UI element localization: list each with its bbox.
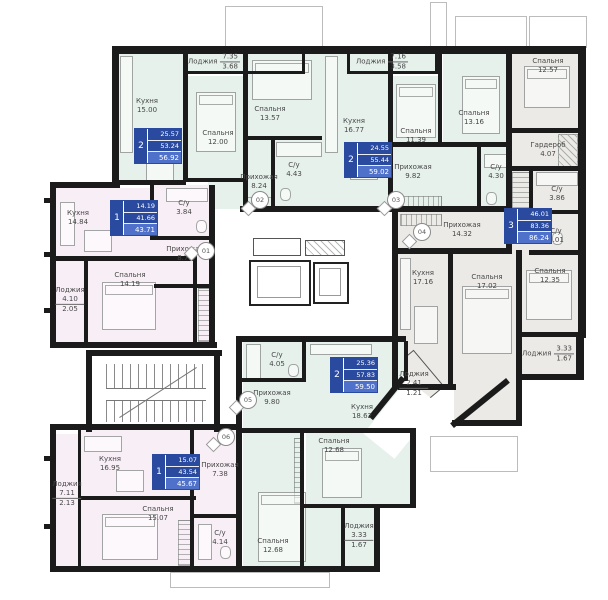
- room-name: Гардероб: [530, 141, 565, 150]
- room-name: Спальня: [202, 129, 233, 138]
- room-area: 14.32: [443, 230, 481, 239]
- stat-card-a01: 1 14.19 41.66 43.71: [110, 200, 158, 236]
- label-bedroom2-a04: Спальня17.02: [471, 273, 502, 291]
- wall: [243, 136, 322, 140]
- wall: [512, 128, 578, 133]
- wall: [302, 336, 306, 382]
- loggia-area-bottom: 1.67: [554, 355, 574, 364]
- wall: [448, 254, 453, 386]
- label-bath-a01: С/у3.84: [176, 199, 192, 217]
- wall-thin: [435, 46, 438, 74]
- label-kitchen-a05: Кухня18.62: [351, 403, 373, 421]
- label-bath-a05: С/у4.05: [269, 351, 285, 369]
- label-bedroom2-a03: Спальня13.16: [458, 109, 489, 127]
- furniture-table: [84, 230, 112, 252]
- furniture-counter: [120, 56, 133, 153]
- wall: [86, 350, 92, 432]
- room-name: Прихожая: [253, 389, 291, 398]
- room-area: 3.86: [549, 194, 565, 203]
- room-name: Спальня: [114, 271, 145, 280]
- room-name: Кухня: [99, 455, 121, 464]
- label-loggia1-a04: Лоджия 3.331.67: [522, 344, 574, 363]
- label-bedroom-a01: Спальня14.19: [114, 271, 145, 289]
- furniture-toilet: [288, 364, 299, 377]
- entrance-marker-02: 02: [251, 191, 269, 209]
- apartment-area: 55.44: [358, 155, 391, 167]
- wall: [578, 46, 586, 338]
- loggia-fraction: 7.112.13: [52, 489, 81, 508]
- room-area: 12.00: [202, 138, 233, 147]
- apartment-area: 43.54: [166, 467, 199, 479]
- living-area: 46.01: [518, 209, 551, 221]
- wall: [190, 428, 194, 568]
- label-bath1-a04: С/у3.86: [549, 185, 565, 203]
- label-loggia2-a04: Лоджия 2.411.21: [399, 370, 428, 398]
- room-area: 15.07: [142, 514, 173, 523]
- room-name: Прихожая: [394, 163, 432, 172]
- room-area: 17.02: [471, 282, 502, 291]
- label-bath-a03: С/у4.30: [488, 163, 504, 181]
- wall: [240, 378, 306, 382]
- elevator-cab: [257, 266, 301, 298]
- room-area: 14.19: [114, 280, 145, 289]
- balcony-outline: [170, 572, 330, 588]
- room-name: С/у: [488, 163, 504, 172]
- wall: [477, 147, 481, 206]
- wall: [50, 342, 217, 348]
- stat-card-a04: 3 46.01 83.36 86.24: [504, 208, 552, 244]
- wall: [236, 336, 242, 572]
- elevator-cab: [319, 268, 341, 296]
- rooms-count: 3: [505, 209, 518, 243]
- wall-tick: [44, 198, 52, 203]
- wall: [78, 496, 196, 500]
- furniture-counter: [400, 258, 411, 330]
- wall: [529, 250, 580, 255]
- label-kitchen-a03: Кухня16.77: [343, 117, 365, 135]
- room-area: 4.43: [286, 170, 302, 179]
- room-name: С/у: [176, 199, 192, 208]
- room-area: 8.24: [240, 182, 278, 191]
- rooms-count: 2: [345, 143, 358, 177]
- loggia-area-bottom: 3.58: [388, 63, 408, 72]
- living-area: 15.07: [166, 455, 199, 467]
- wall: [438, 46, 442, 146]
- wall: [214, 350, 220, 432]
- living-area: 14.19: [124, 201, 157, 213]
- label-kitchen-a06: Кухня16.95: [99, 455, 121, 473]
- apartment-area: 83.36: [518, 221, 551, 233]
- label-loggia-a03: Лоджия 7.163.58: [356, 52, 408, 71]
- label-bedroom-a06: Спальня15.07: [142, 505, 173, 523]
- room-name: Спальня: [142, 505, 173, 514]
- apartment-area: 57.83: [344, 370, 377, 382]
- room-area: 3.84: [176, 208, 192, 217]
- loggia-area-bottom: 3.68: [220, 63, 240, 72]
- wall: [193, 261, 197, 342]
- wall-thin: [347, 46, 350, 74]
- room-name: Кухня: [351, 403, 373, 412]
- label-kitchen-a02: Кухня15.00: [136, 97, 158, 115]
- entrance-marker-04: 04: [413, 223, 431, 241]
- room-name: Спальня: [400, 127, 431, 136]
- room-name: С/у: [286, 161, 302, 170]
- room-name: Спальня: [257, 537, 288, 546]
- wall-thin: [302, 46, 305, 74]
- apartment-area: 41.66: [124, 213, 157, 225]
- label-bedroom1-a02: Спальня12.00: [202, 129, 233, 147]
- loggia-fraction: 7.353.68: [220, 52, 240, 71]
- wall: [50, 182, 56, 348]
- furniture-toilet: [220, 546, 231, 559]
- furniture-bathtub: [246, 344, 261, 380]
- entrance-marker-06: 06: [217, 428, 235, 446]
- wall: [576, 332, 584, 380]
- label-loggia-a05: Лоджия 3.331.67: [344, 522, 373, 550]
- wall: [374, 506, 380, 572]
- rooms-count: 2: [331, 358, 344, 392]
- rooms-count: 2: [135, 129, 148, 163]
- room-name: С/у: [212, 529, 228, 538]
- label-loggia-a06: Лоджия 7.112.13: [52, 480, 81, 508]
- label-bedroom2-a05: Спальня12.68: [257, 537, 288, 555]
- wall: [516, 374, 582, 380]
- wall: [452, 420, 522, 426]
- furniture-counter: [310, 344, 372, 355]
- room-area: 11.39: [400, 136, 431, 145]
- label-hall-a05: Прихожая9.80: [253, 389, 291, 407]
- label-loggia-a01: Лоджия 4.102.05: [55, 286, 84, 314]
- wall-tick: [44, 456, 52, 461]
- furniture-sofa: [84, 436, 122, 452]
- wall: [240, 428, 410, 433]
- furniture-bed: [102, 282, 156, 330]
- room-area: 4.14: [212, 538, 228, 547]
- label-bedroom1-a04: Спальня12.57: [532, 57, 563, 75]
- total-area: 45.67: [166, 478, 199, 489]
- wall: [392, 206, 398, 388]
- wall-tick: [44, 252, 52, 257]
- balcony-outline: [225, 6, 323, 48]
- room-name: Прихожая: [201, 461, 239, 470]
- wall: [112, 46, 119, 188]
- room-name: Лоджия: [55, 286, 84, 295]
- room-bedroom2b-a05: [303, 508, 343, 568]
- label-bedroom1-a05: Спальня12.68: [318, 437, 349, 455]
- furniture-bathtub: [276, 142, 322, 157]
- apartment-area: 53.24: [148, 141, 181, 153]
- room-name: Кухня: [136, 97, 158, 106]
- room-name: С/у: [549, 185, 565, 194]
- label-hall-a02: Прихожая8.24: [240, 173, 278, 191]
- room-name: Лоджия: [522, 349, 551, 358]
- loggia-area-top: 3.33: [554, 344, 574, 354]
- wall: [150, 236, 215, 240]
- loggia-area-bottom: 1.21: [399, 389, 428, 398]
- wall: [240, 206, 510, 212]
- entrance-marker-05: 05: [239, 391, 257, 409]
- wall: [410, 428, 416, 508]
- shaft-box: [253, 238, 301, 256]
- room-name: Прихожая: [240, 173, 278, 182]
- wall: [512, 166, 578, 171]
- furniture-bed: [322, 448, 362, 498]
- room-name: Лоджия: [344, 522, 373, 531]
- room-name: С/у: [269, 351, 285, 360]
- label-loggia-a02: Лоджия 7.353.68: [188, 52, 240, 71]
- wall: [516, 332, 582, 337]
- room-name: Спальня: [318, 437, 349, 446]
- label-kitchen-a04: Кухня17.16: [412, 269, 434, 287]
- wall: [86, 350, 222, 356]
- room-area: 12.68: [257, 546, 288, 555]
- room-area: 15.00: [136, 106, 158, 115]
- loggia-area-top: 2.41: [399, 379, 428, 389]
- label-hall-a04: Прихожая14.32: [443, 221, 481, 239]
- room-name: Лоджия: [399, 370, 428, 379]
- loggia-area-bottom: 2.13: [52, 499, 81, 508]
- room-area: 12.35: [534, 276, 565, 285]
- stair-landing: [106, 388, 206, 401]
- loggia-fraction: 4.102.05: [55, 295, 84, 314]
- total-area: 59.02: [358, 166, 391, 177]
- wall: [303, 504, 414, 508]
- wall: [190, 514, 242, 518]
- label-bedroom3-a04: Спальня12.35: [534, 267, 565, 285]
- room-name: Спальня: [534, 267, 565, 276]
- living-area: 25.36: [344, 358, 377, 370]
- room-area: 16.95: [99, 464, 121, 473]
- room-area: 12.68: [318, 446, 349, 455]
- entrance-marker-03: 03: [387, 191, 405, 209]
- label-wardrobe-a04: Гардероб4.07: [530, 141, 565, 159]
- furniture-bathtub: [198, 524, 212, 560]
- room-name: Спальня: [458, 109, 489, 118]
- stat-card-a02: 2 25.57 53.24 56.92: [134, 128, 182, 164]
- furniture-bed: [462, 286, 512, 354]
- room-name: Лоджия: [188, 57, 217, 66]
- wall: [398, 248, 512, 254]
- wall-tick: [44, 308, 52, 313]
- entrance-marker-01: 01: [197, 242, 215, 260]
- room-name: Лоджия: [356, 57, 385, 66]
- room-area: 4.05: [269, 360, 285, 369]
- stat-card-a05: 2 25.36 57.83 59.50: [330, 357, 378, 393]
- room-area: 4.07: [530, 150, 565, 159]
- shaft-box: [305, 240, 345, 256]
- living-area: 25.57: [148, 129, 181, 141]
- rooms-count: 1: [153, 455, 166, 489]
- label-hall-a06: Прихожая7.38: [201, 461, 239, 479]
- total-area: 86.24: [518, 232, 551, 243]
- balcony-outline: [529, 16, 587, 48]
- room-name: Прихожая: [443, 221, 481, 230]
- wall: [516, 250, 522, 426]
- loggia-area-bottom: 1.67: [344, 541, 373, 550]
- total-area: 43.71: [124, 224, 157, 235]
- room-area: 12.57: [532, 66, 563, 75]
- room-area: 4.30: [488, 172, 504, 181]
- furniture-toilet: [280, 188, 291, 201]
- room-name: Спальня: [532, 57, 563, 66]
- label-bath-a06: С/у4.14: [212, 529, 228, 547]
- label-bath-a02: С/у4.43: [286, 161, 302, 179]
- label-kitchen-a01: Кухня14.84: [67, 209, 89, 227]
- wall: [300, 428, 304, 568]
- balcony-outline: [455, 16, 527, 48]
- wall-tick: [44, 524, 52, 529]
- floor-plan: Лоджия 7.353.68 Кухня15.00 Спальня12.00 …: [0, 0, 608, 600]
- loggia-area-bottom: 2.05: [55, 305, 84, 314]
- loggia-area-top: 3.33: [344, 531, 373, 541]
- loggia-fraction: 2.411.21: [399, 379, 428, 398]
- rooms-count: 1: [111, 201, 124, 235]
- room-area: 13.57: [254, 114, 285, 123]
- room-name: Спальня: [254, 105, 285, 114]
- loggia-area-top: 7.35: [220, 52, 240, 62]
- room-area: 13.16: [458, 118, 489, 127]
- balcony-outline: [430, 2, 447, 48]
- loggia-area-top: 7.16: [388, 52, 408, 62]
- furniture-table: [116, 470, 144, 492]
- furniture-toilet: [196, 220, 207, 233]
- label-hall-a03: Прихожая9.82: [394, 163, 432, 181]
- room-area: 7.38: [201, 470, 239, 479]
- furniture-counter: [325, 56, 338, 153]
- room-area: 17.16: [412, 278, 434, 287]
- total-area: 59.50: [344, 381, 377, 392]
- room-area: 18.62: [351, 412, 373, 421]
- furniture-bathtub: [536, 172, 578, 186]
- loggia-area-top: 7.11: [52, 489, 81, 499]
- loggia-fraction: 3.331.67: [344, 531, 373, 550]
- wall: [240, 336, 406, 342]
- stat-card-a03: 2 24.55 55.44 59.02: [344, 142, 392, 178]
- room-name: Спальня: [471, 273, 502, 282]
- wall: [52, 182, 120, 188]
- room-name: Лоджия: [52, 480, 81, 489]
- wall: [209, 185, 215, 345]
- room-name: Кухня: [412, 269, 434, 278]
- room-area: 14.84: [67, 218, 89, 227]
- furniture-toilet: [486, 192, 497, 205]
- loggia-area-top: 4.10: [55, 295, 84, 305]
- loggia-fraction: 3.331.67: [554, 344, 574, 363]
- room-area: 9.82: [394, 172, 432, 181]
- wall: [183, 178, 245, 182]
- room-name: Кухня: [343, 117, 365, 126]
- stat-card-a06: 1 15.07 43.54 45.67: [152, 454, 200, 490]
- terrace-outline: [430, 436, 518, 472]
- label-bedroom2-a02: Спальня13.57: [254, 105, 285, 123]
- room-name: Кухня: [67, 209, 89, 218]
- label-bedroom1-a03: Спальня11.39: [400, 127, 431, 145]
- living-area: 24.55: [358, 143, 391, 155]
- room-area: 9.80: [253, 398, 291, 407]
- total-area: 56.92: [148, 152, 181, 163]
- loggia-fraction: 7.163.58: [388, 52, 408, 71]
- wall: [154, 284, 214, 288]
- furniture-table: [414, 306, 438, 344]
- wall-thin: [184, 46, 187, 74]
- room-area: 16.77: [343, 126, 365, 135]
